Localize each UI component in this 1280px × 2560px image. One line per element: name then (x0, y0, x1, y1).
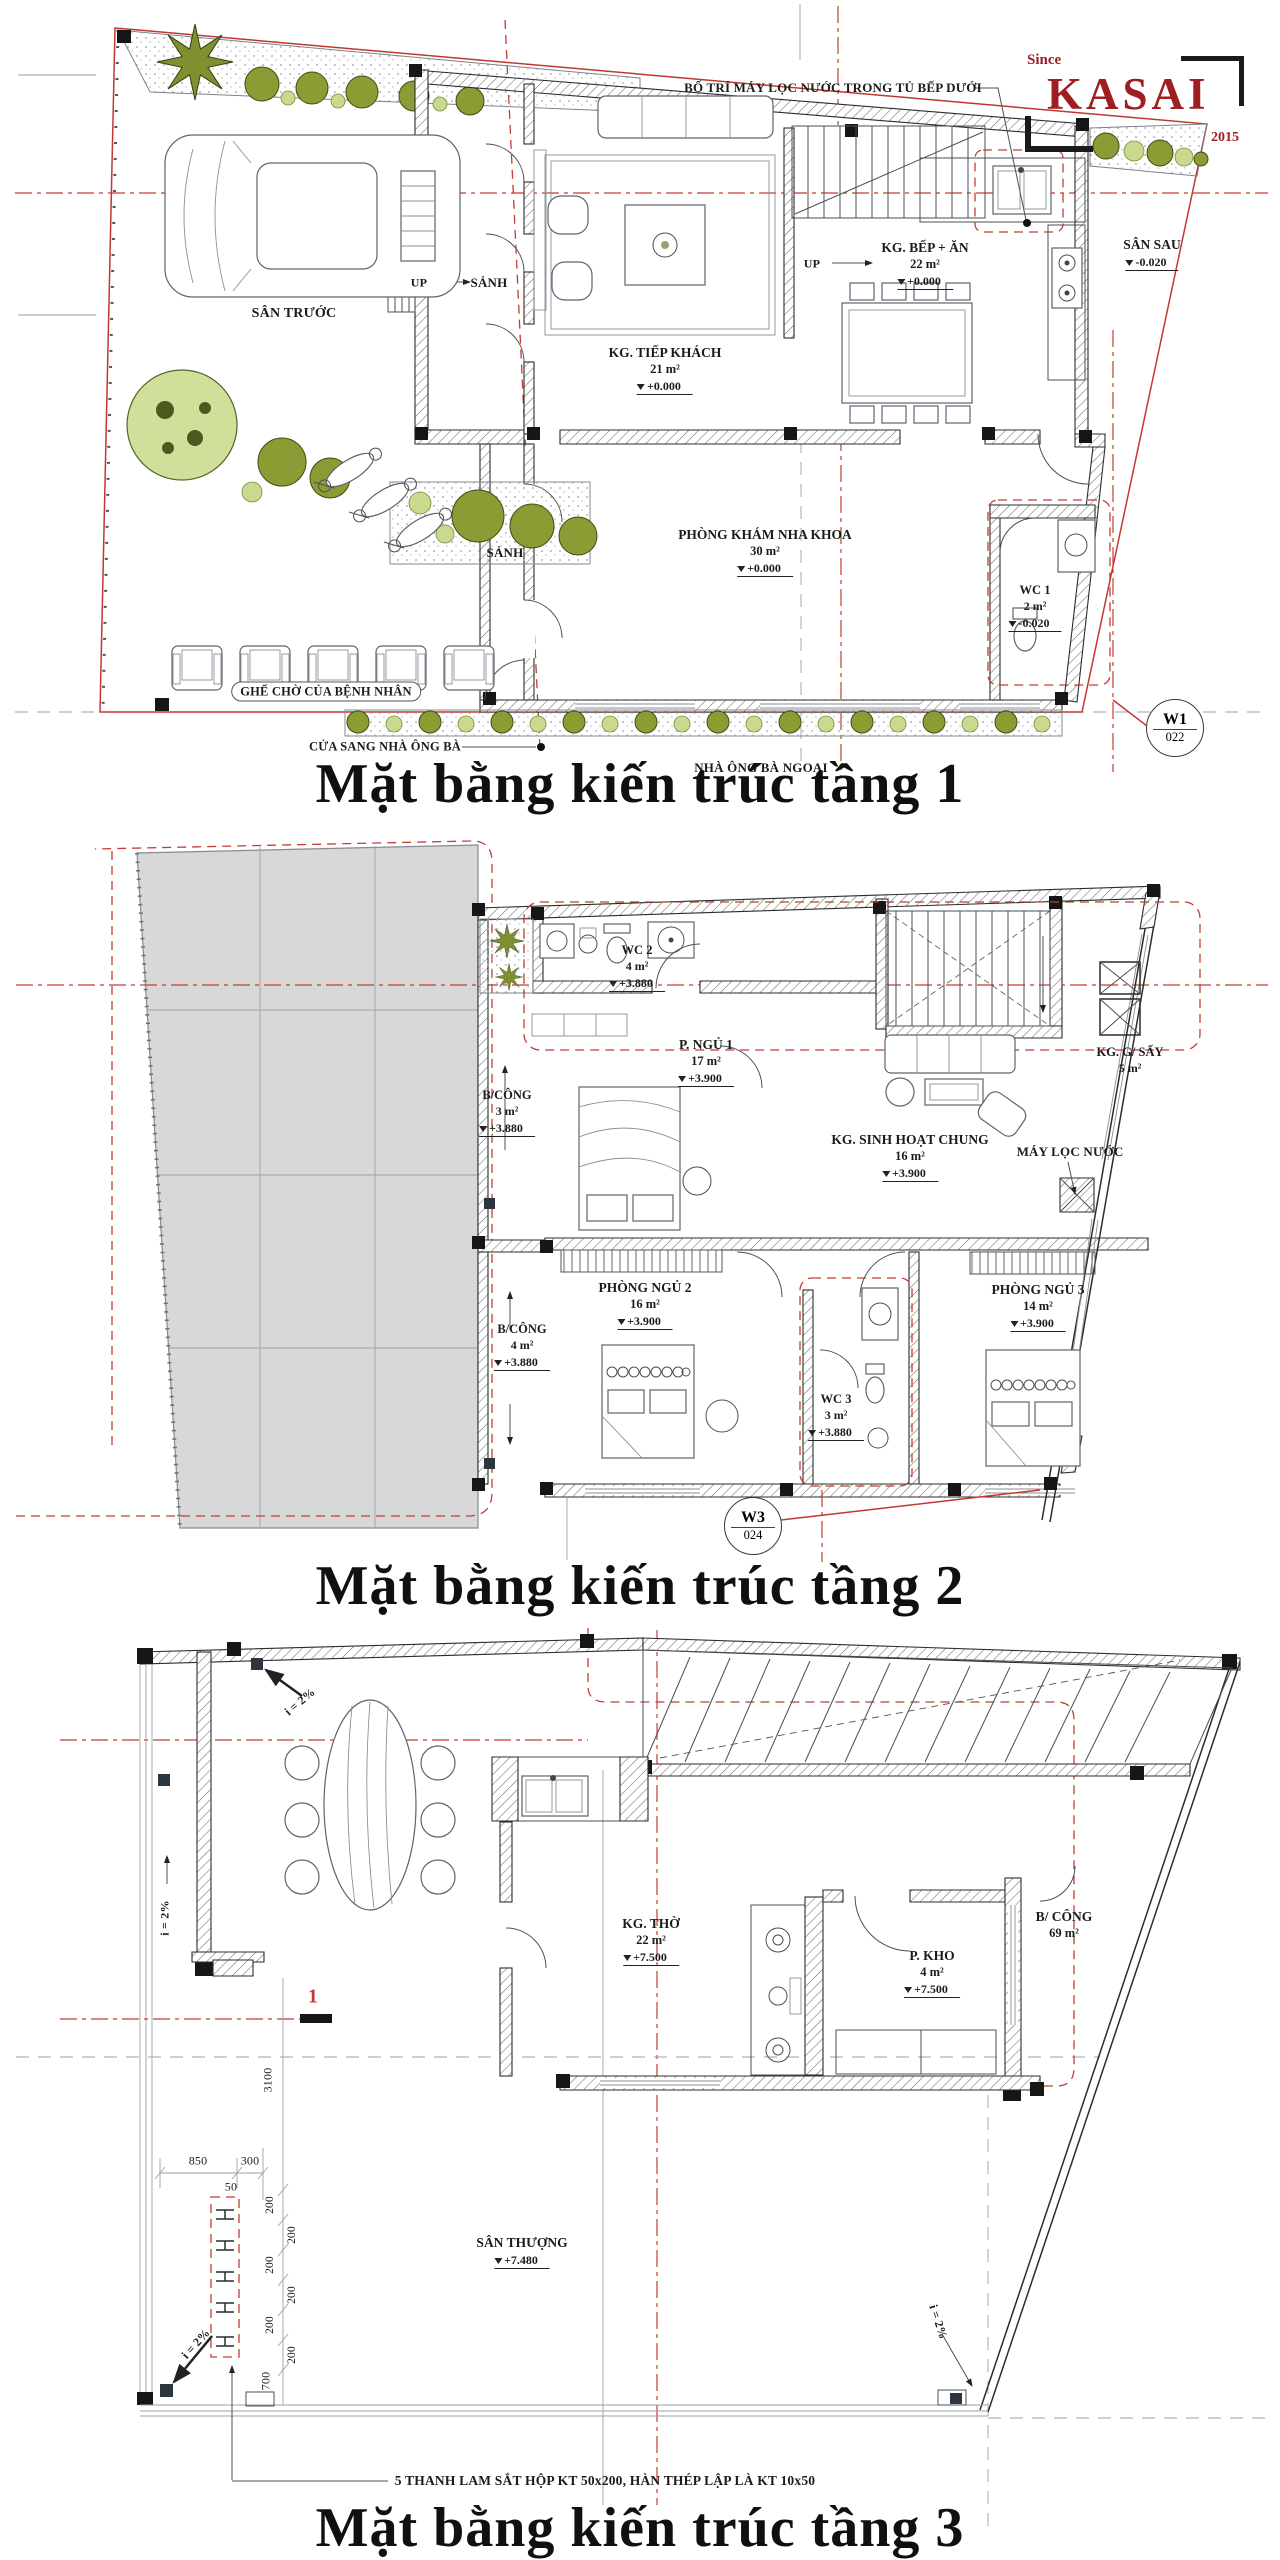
room-ngu3: PHÒNG NGỦ 314 m² +3.900 (992, 1282, 1085, 1332)
dim-200-6: 200 (286, 2346, 298, 2364)
room-wc3: WC 33 m² +3.880 (808, 1392, 864, 1441)
dim-200-4: 200 (286, 2286, 298, 2304)
architectural-sheet: Since KASAI 2015 BỐ TRÍ MÁY LỌC NƯỚC TRO… (0, 0, 1280, 2560)
room-wc1: WC 12 m² -0.020 (1009, 583, 1062, 632)
dim-200-5: 200 (264, 2316, 276, 2334)
room-tho: KG. THỜ22 m² +7.500 (622, 1916, 680, 1966)
section-marker-1: 1 (308, 1986, 318, 2009)
title-floor1: Mặt bằng kiến trúc tầng 1 (316, 752, 965, 816)
label-slope-c: i = 2% (158, 1900, 173, 1935)
label-up-porch: UP (411, 276, 427, 291)
logo-bracket-bottom-icon (1025, 116, 1093, 152)
logo-bracket-top-icon (1181, 56, 1244, 106)
room-gsay: KG. G/ SẤY5 m² (1096, 1045, 1163, 1076)
logo-since: Since (1027, 52, 1061, 69)
title-floor2: Mặt bằng kiến trúc tầng 2 (316, 1554, 965, 1618)
room-ngu1: P. NGỦ 117 m² +3.900 (678, 1037, 734, 1087)
dim-3100: 3100 (261, 2068, 276, 2093)
room-bcong-3: B/CÔNG3 m² +3.880 (479, 1088, 535, 1137)
room-san-sau: SÂN SAU -0.020 (1123, 237, 1180, 271)
label-up-stair: UP (804, 257, 820, 272)
room-shc: KG. SINH HOẠT CHUNG16 m² +3.900 (831, 1132, 988, 1182)
label-sanh-2: SẢNH (487, 545, 524, 561)
detail-marker-w3: W3024 (724, 1497, 782, 1555)
room-tiep-khach: KG. TIẾP KHÁCH21 m² +0.000 (609, 345, 722, 395)
dim-850: 850 (189, 2154, 208, 2169)
dim-700: 700 (259, 2372, 274, 2391)
room-san-thuong: SÂN THƯỢNG +7.480 (476, 2235, 567, 2269)
label-san-truoc: SÂN TRƯỚC (252, 306, 337, 322)
dim-50: 50 (225, 2180, 237, 2195)
room-wc2: WC 24 m² +3.880 (609, 943, 665, 992)
note-water-filter: BỐ TRÍ MÁY LỌC NƯỚC TRONG TỦ BẾP DƯỚI (684, 80, 982, 96)
dim-200-2: 200 (286, 2226, 298, 2244)
room-kham: PHÒNG KHÁM NHA KHOA30 m² +0.000 (678, 527, 852, 577)
room-bcong-4: B/CÔNG4 m² +3.880 (494, 1322, 550, 1371)
dim-200-1: 200 (264, 2196, 276, 2214)
detail-marker-w1: W1022 (1146, 699, 1204, 757)
car-plan (165, 135, 460, 297)
floor3-plan (16, 1628, 1268, 2530)
note-louver: 5 THANH LAM SẮT HỘP KT 50x200, HÀN THÉP … (395, 2473, 815, 2489)
title-floor3: Mặt bằng kiến trúc tầng 3 (316, 2496, 965, 2560)
kasai-logo: Since KASAI 2015 (1015, 46, 1255, 158)
dim-200-3: 200 (264, 2256, 276, 2274)
logo-year: 2015 (1211, 130, 1239, 146)
room-bcong-roof: B/ CÔNG69 m² (1036, 1909, 1093, 1941)
dim-300: 300 (241, 2154, 260, 2169)
room-kho: P. KHO4 m² +7.500 (904, 1948, 960, 1998)
label-may-loc: MÁY LỌC NƯỚC (1017, 1144, 1124, 1160)
label-ghe-cho: GHẾ CHỜ CỦA BỆNH NHÂN (231, 685, 421, 700)
room-bep-an: KG. BẾP + ĂN22 m² +0.000 (881, 240, 968, 290)
room-ngu2: PHÒNG NGỦ 216 m² +3.900 (599, 1280, 692, 1330)
label-sanh-1: SẢNH (471, 275, 508, 291)
